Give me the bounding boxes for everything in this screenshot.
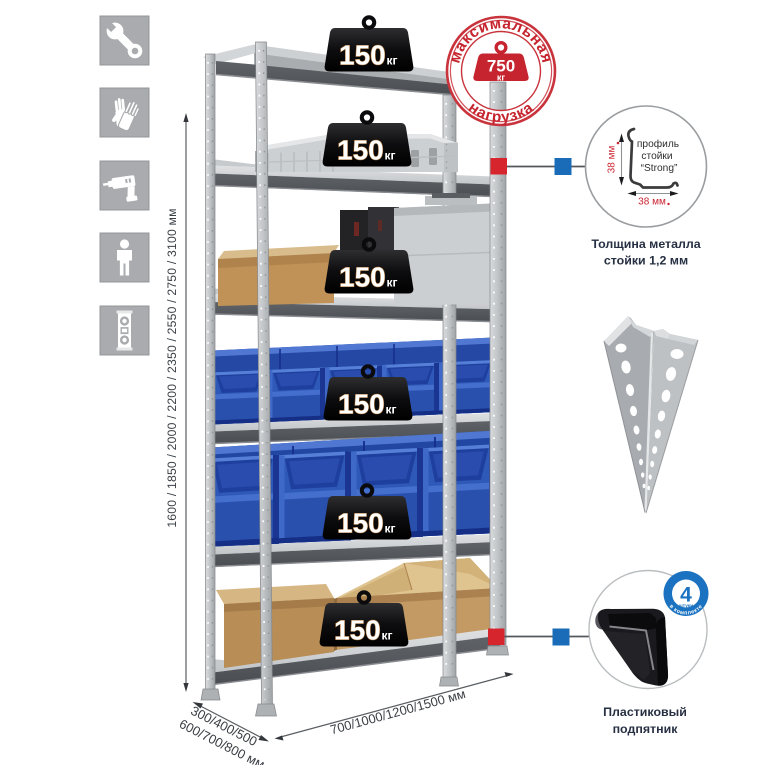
svg-text:стойки 1,2 мм: стойки 1,2 мм — [604, 254, 688, 268]
svg-text:подпятник: подпятник — [613, 722, 679, 736]
svg-text:1600 / 1850 / 2000 / 2200 / 23: 1600 / 1850 / 2000 / 2200 / 2350 / 2550 … — [165, 208, 179, 527]
svg-text:38 мм: 38 мм — [638, 197, 666, 208]
svg-text:38 мм: 38 мм — [607, 146, 618, 174]
svg-text:стойки: стойки — [641, 151, 672, 162]
svg-text:штуки: штуки — [679, 604, 694, 609]
svg-text:Пластиковый: Пластиковый — [603, 705, 687, 719]
svg-text:Толщина металла: Толщина металла — [591, 237, 700, 251]
svg-text:“Strong”: “Strong” — [641, 163, 678, 174]
svg-text:кг: кг — [497, 73, 506, 83]
svg-text:профиль: профиль — [637, 138, 679, 150]
